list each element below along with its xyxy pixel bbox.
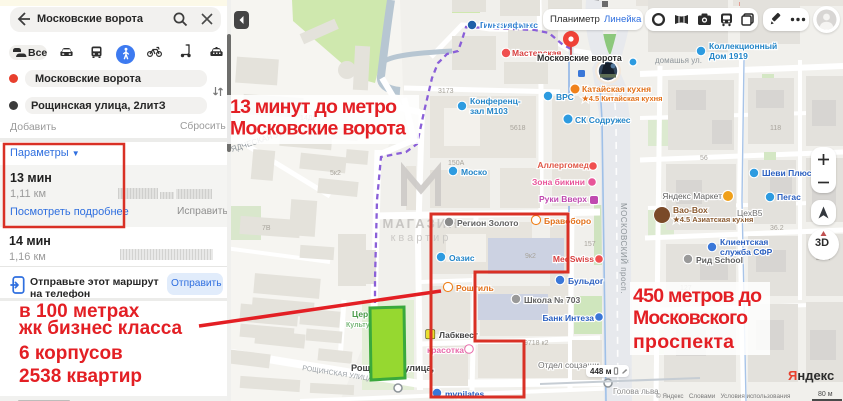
svg-text:ВРС: ВРС: [556, 92, 574, 102]
svg-text:★4.5 Китайская кухня: ★4.5 Китайская кухня: [582, 94, 663, 103]
svg-text:Банк Интеза: Банк Интеза: [542, 313, 594, 323]
svg-text:14Д6: 14Д6: [300, 115, 317, 122]
svg-text:118: 118: [770, 125, 781, 132]
svg-text:7В: 7В: [262, 225, 271, 232]
svg-text:Бульдог: Бульдог: [568, 276, 604, 286]
svg-text:Рид School: Рид School: [696, 255, 743, 265]
svg-text:квартир: квартир: [391, 232, 452, 244]
svg-text:5618: 5618: [510, 125, 526, 132]
svg-text:Катайская кухня: Катайская кухня: [582, 84, 651, 94]
svg-text:9к2: 9к2: [525, 253, 536, 260]
svg-text:домашья ул.: домашья ул.: [655, 56, 702, 65]
svg-text:3173: 3173: [438, 88, 454, 95]
svg-text:зал М103: зал М103: [470, 106, 508, 116]
svg-text:Гимназия фитнес: Гимназия фитнес: [480, 20, 538, 30]
svg-text:Зона бикини: Зона бикини: [532, 177, 585, 187]
svg-text:36.2: 36.2: [770, 225, 784, 232]
svg-text:9718 к2: 9718 к2: [524, 340, 549, 347]
svg-text:красотка: красотка: [427, 345, 464, 355]
svg-text:Конференц-: Конференц-: [470, 96, 521, 106]
svg-text:Аллергомед: Аллергомед: [537, 160, 589, 170]
svg-text:Лабквест: Лабквест: [439, 330, 478, 340]
svg-text:56: 56: [700, 155, 708, 162]
svg-text:Роштиль: Роштиль: [456, 283, 494, 293]
svg-text:Дом 1919: Дом 1919: [709, 51, 748, 61]
svg-text:mvpilates: mvpilates: [445, 389, 484, 399]
svg-text:Школа № 703: Школа № 703: [524, 295, 580, 305]
svg-text:Пегас: Пегас: [777, 192, 801, 202]
svg-text:127: 127: [680, 285, 692, 292]
svg-text:Московские ворота: Московские ворота: [537, 53, 622, 63]
svg-text:Культурный ц: Культурный ц: [346, 321, 395, 329]
svg-text:Голова льва: Голова льва: [613, 387, 659, 396]
svg-text:Коллекционный: Коллекционный: [709, 41, 777, 51]
svg-text:5к2: 5к2: [330, 170, 341, 177]
svg-text:Бравоборо: Бравоборо: [544, 216, 591, 226]
svg-text:Шеви Плюс: Шеви Плюс: [762, 168, 812, 178]
svg-text:150А: 150А: [448, 160, 465, 167]
svg-text:Регион Золото: Регион Золото: [457, 218, 518, 228]
svg-text:Цер: Цер: [352, 309, 368, 319]
svg-text:Руки Вверх: Руки Вверх: [539, 194, 587, 204]
svg-text:Моско: Моско: [461, 167, 487, 177]
svg-text:MedSwiss: MedSwiss: [553, 254, 594, 264]
svg-text:Оазис: Оазис: [449, 253, 475, 263]
svg-text:ЦехВ5: ЦехВ5: [737, 208, 763, 218]
svg-text:СК Содружес: СК Содружес: [575, 115, 631, 125]
svg-text:Клиентская: Клиентская: [720, 237, 768, 247]
svg-text:157: 157: [584, 241, 596, 248]
svg-text:Рощинская улица,: Рощинская улица,: [351, 363, 434, 373]
svg-text:Яндекс Маркет: Яндекс Маркет: [662, 191, 722, 201]
svg-text:МОСКОВСКИЙ просп.: МОСКОВСКИЙ просп.: [619, 203, 628, 294]
svg-text:Вао-Вох: Вао-Вох: [673, 205, 708, 215]
